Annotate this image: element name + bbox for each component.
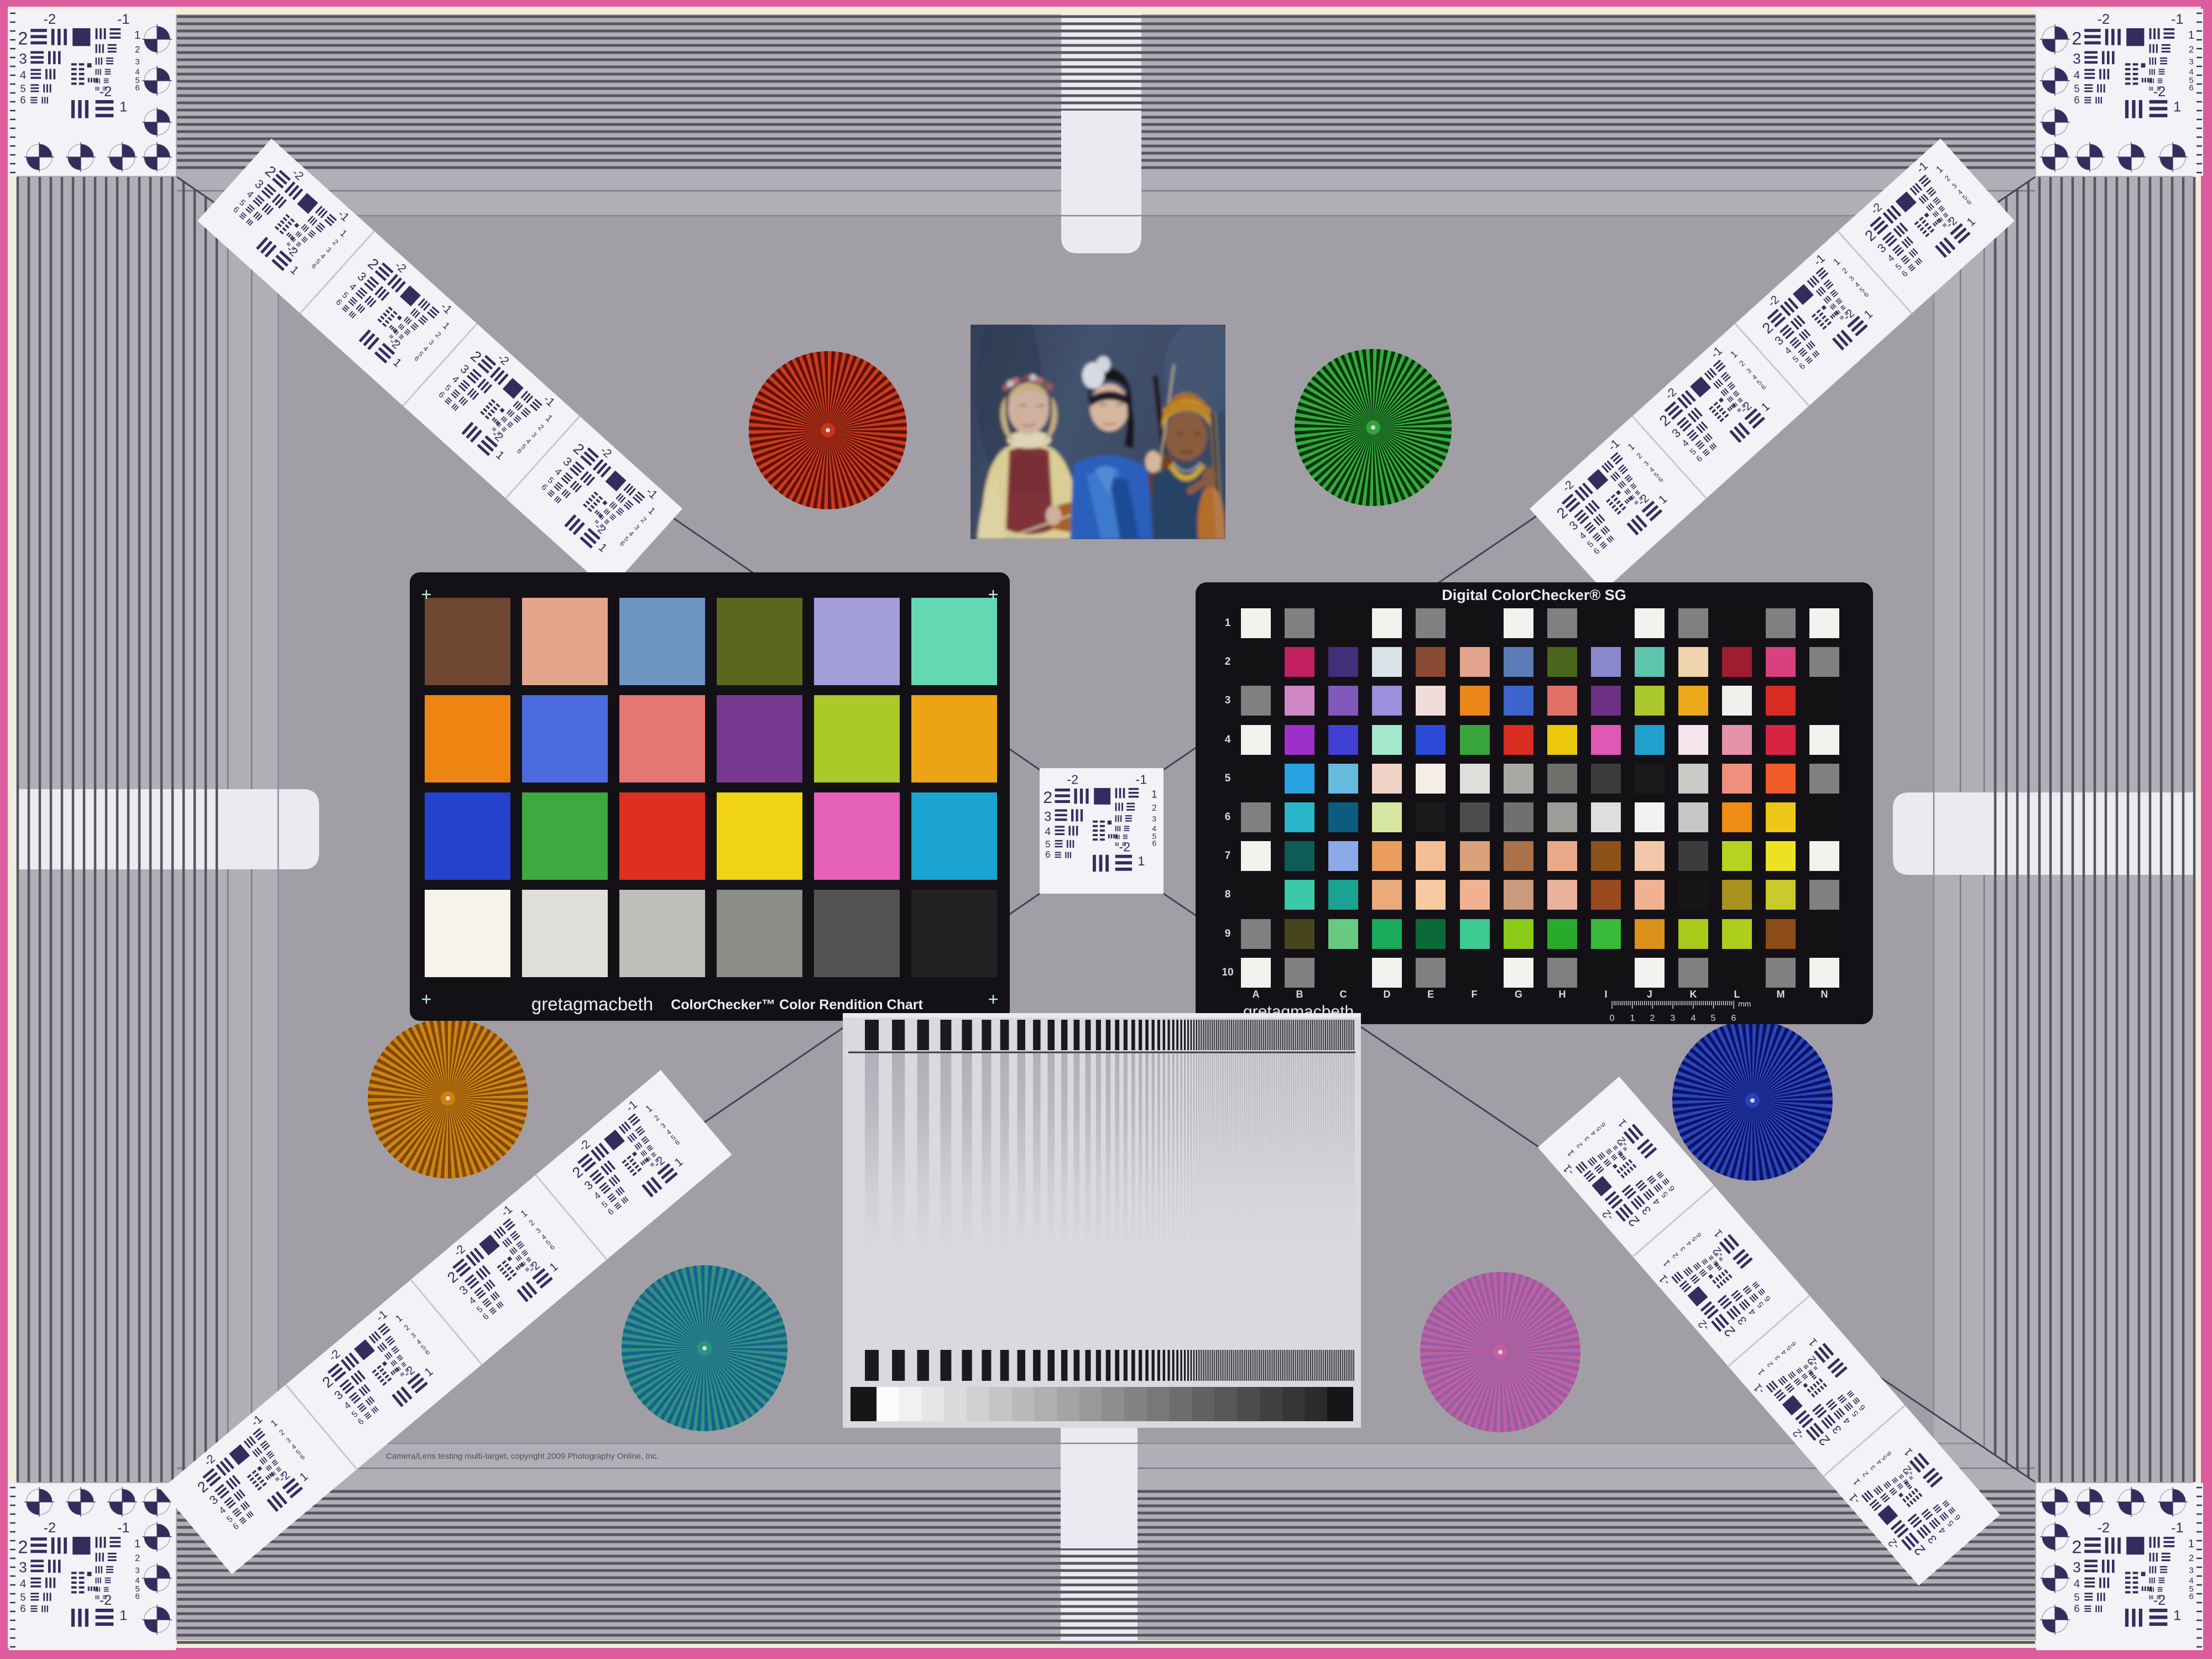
- svg-text:A: A: [1253, 989, 1260, 1000]
- svg-text:F: F: [1472, 989, 1478, 1000]
- svg-text:D: D: [1384, 989, 1391, 1000]
- svg-text:5: 5: [1225, 773, 1231, 784]
- svg-text:5: 5: [1711, 1014, 1716, 1023]
- svg-text:I: I: [1604, 989, 1607, 1000]
- svg-text:G: G: [1515, 989, 1522, 1000]
- svg-text:10: 10: [1222, 967, 1233, 978]
- svg-text:mm: mm: [1738, 999, 1751, 1008]
- svg-text:6: 6: [1225, 811, 1231, 823]
- svg-text:8: 8: [1225, 889, 1231, 900]
- svg-text:3: 3: [1225, 695, 1231, 706]
- svg-text:0: 0: [1610, 1014, 1615, 1023]
- svg-text:2: 2: [1650, 1014, 1655, 1023]
- svg-text:Camera/Lens testing multi-targ: Camera/Lens testing multi-target, copyri…: [386, 1452, 659, 1461]
- svg-text:H: H: [1559, 989, 1566, 1000]
- svg-text:1: 1: [1630, 1014, 1635, 1023]
- svg-text:E: E: [1427, 989, 1434, 1000]
- svg-text:C: C: [1340, 989, 1347, 1000]
- svg-text:L: L: [1734, 989, 1740, 1000]
- svg-text:N: N: [1821, 989, 1828, 1000]
- svg-text:7: 7: [1225, 850, 1231, 862]
- svg-text:M: M: [1777, 989, 1785, 1000]
- svg-text:4: 4: [1225, 734, 1231, 745]
- svg-text:3: 3: [1671, 1014, 1676, 1023]
- svg-text:K: K: [1690, 989, 1697, 1000]
- svg-text:6: 6: [1731, 1014, 1736, 1023]
- svg-text:Digital ColorChecker® SG: Digital ColorChecker® SG: [1442, 587, 1626, 603]
- svg-text:J: J: [1647, 989, 1652, 1000]
- svg-text:B: B: [1296, 989, 1303, 1000]
- svg-text:2: 2: [1225, 656, 1231, 667]
- svg-text:4: 4: [1691, 1014, 1696, 1023]
- svg-text:gretagmacbeth: gretagmacbeth: [531, 994, 653, 1014]
- svg-text:1: 1: [1225, 617, 1231, 629]
- svg-text:ColorChecker™ Color Rendition: ColorChecker™ Color Rendition Chart: [671, 997, 923, 1013]
- svg-text:9: 9: [1225, 928, 1231, 940]
